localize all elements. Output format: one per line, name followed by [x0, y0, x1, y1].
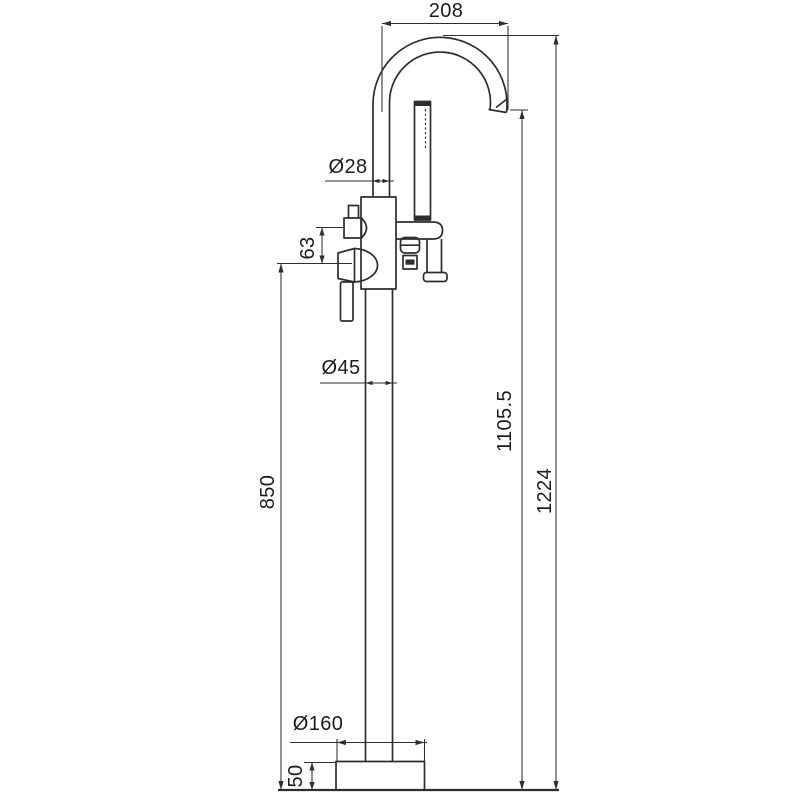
dim-spout-reach-label: 208: [429, 1, 464, 21]
dim-base-diameter-label: Ø160: [293, 714, 344, 734]
dim-base-height-lines: [304, 763, 336, 791]
dim-spout-outlet-height-label: 1105.5: [495, 390, 515, 452]
dim-handle-height-lines: [278, 264, 283, 791]
hand-shower-holder: [396, 222, 447, 282]
hand-shower: [415, 102, 431, 221]
dim-handle-height-label: 850: [258, 475, 278, 510]
faucet-line-drawing: [0, 0, 800, 800]
base-plate: [336, 762, 425, 791]
dim-diverter-to-handle-label: 63: [298, 236, 318, 259]
dim-spout-tube-diameter-lines: [325, 179, 394, 183]
riser-pipe: [366, 289, 393, 762]
drawing-canvas: 208 Ø28 63 Ø45 850 1105.5 1224 Ø160 50: [0, 0, 800, 800]
dim-riser-diameter-lines: [320, 381, 397, 385]
dim-base-height-label: 50: [286, 764, 306, 787]
dim-overall-height-label: 1224: [535, 468, 555, 514]
mixer-body: [361, 197, 396, 289]
dim-riser-diameter-label: Ø45: [321, 358, 360, 378]
dim-base-diameter-lines: [290, 739, 427, 761]
dim-spout-tube-diameter-label: Ø28: [328, 157, 367, 177]
diverter-knob: [344, 206, 367, 239]
gooseneck-spout: [373, 37, 507, 197]
dim-spout-reach-lines: [382, 21, 508, 112]
lever-handle: [338, 249, 378, 322]
